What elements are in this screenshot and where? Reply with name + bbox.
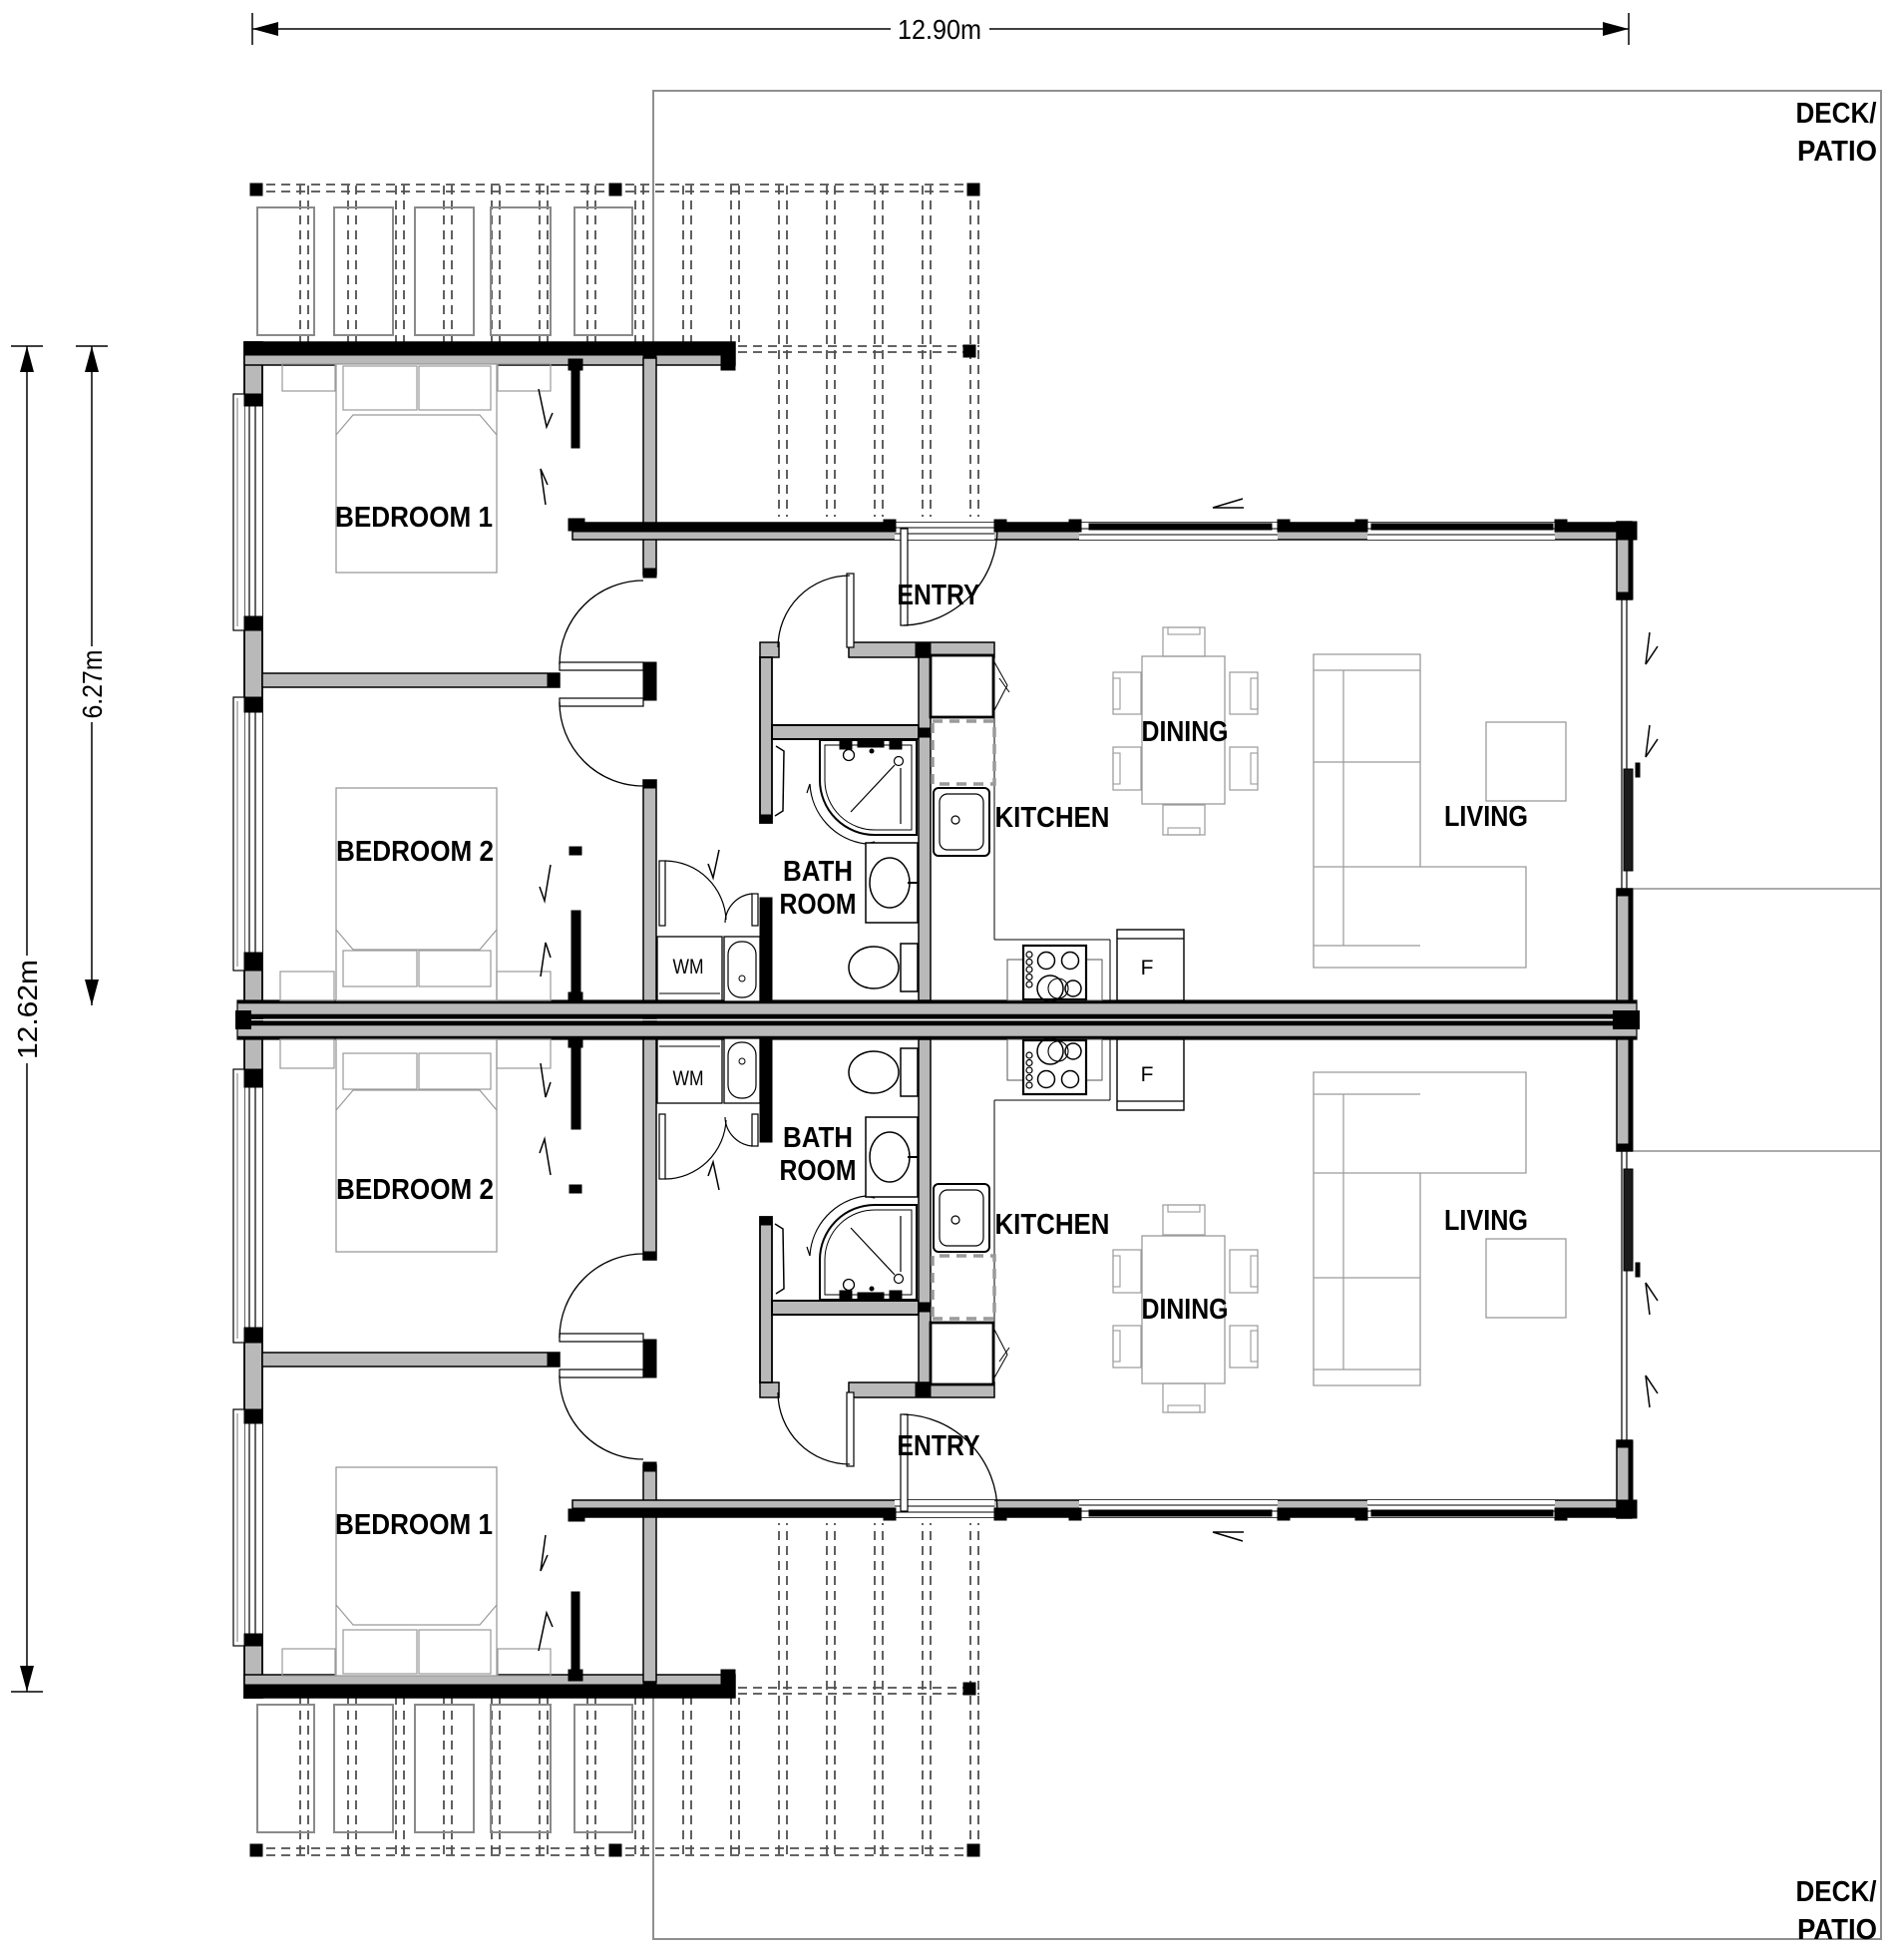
svg-text:6.27m: 6.27m — [77, 650, 108, 719]
svg-text:KITCHEN: KITCHEN — [995, 1209, 1110, 1241]
svg-text:PATIO: PATIO — [1797, 136, 1877, 168]
svg-text:DECK/: DECK/ — [1796, 98, 1877, 130]
svg-text:ROOM: ROOM — [780, 1155, 857, 1187]
svg-text:BEDROOM 1: BEDROOM 1 — [335, 502, 493, 534]
svg-text:F: F — [1141, 957, 1154, 980]
svg-text:F: F — [1141, 1063, 1154, 1086]
svg-text:DECK/: DECK/ — [1796, 1876, 1877, 1908]
svg-text:12.90m: 12.90m — [898, 14, 981, 45]
svg-text:DINING: DINING — [1142, 716, 1229, 748]
svg-text:BATH: BATH — [783, 1122, 853, 1154]
svg-text:PATIO: PATIO — [1797, 1914, 1877, 1946]
svg-text:BEDROOM 1: BEDROOM 1 — [335, 1509, 493, 1541]
svg-text:ENTRY: ENTRY — [898, 580, 980, 611]
svg-text:ENTRY: ENTRY — [898, 1430, 980, 1462]
svg-text:BEDROOM 2: BEDROOM 2 — [336, 836, 494, 868]
svg-text:BATH: BATH — [783, 856, 853, 888]
svg-text:ROOM: ROOM — [780, 889, 857, 921]
svg-text:LIVING: LIVING — [1444, 801, 1528, 833]
svg-text:12.62m: 12.62m — [12, 960, 43, 1059]
svg-text:WM: WM — [673, 1067, 704, 1090]
svg-text:DINING: DINING — [1142, 1294, 1229, 1326]
svg-text:KITCHEN: KITCHEN — [995, 802, 1110, 834]
svg-text:LIVING: LIVING — [1444, 1205, 1528, 1237]
svg-text:WM: WM — [673, 956, 704, 979]
svg-text:BEDROOM 2: BEDROOM 2 — [336, 1174, 494, 1206]
